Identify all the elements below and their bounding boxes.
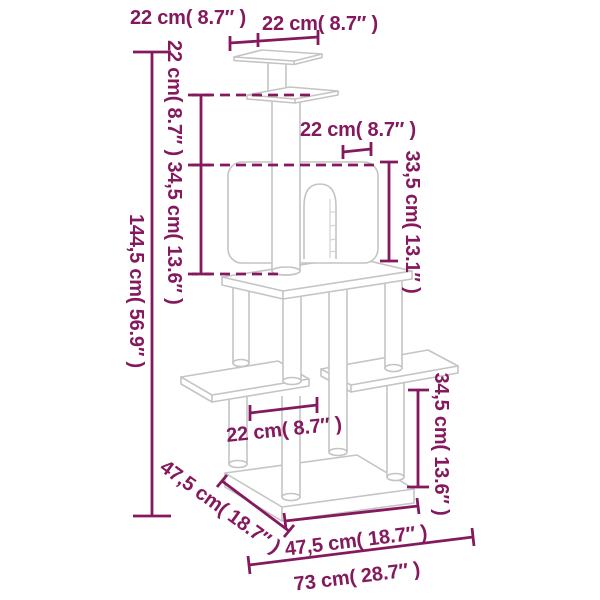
cat-condo: [228, 162, 378, 263]
label-condo-height: 33,5 cm( 13.1″ ): [401, 150, 423, 293]
post-base-cap: [385, 365, 402, 372]
post-base-cap: [329, 449, 347, 456]
dimension-line-door-width: [343, 142, 371, 159]
label-condo-door-width: 22 cm( 8.7″ ): [300, 119, 416, 141]
label-top-platform-width: 22 cm( 8.7″ ): [262, 13, 378, 35]
post-base-cap: [229, 461, 247, 468]
scratching-post: [282, 396, 300, 500]
dimension-diagram: 22 cm( 8.7″ ) 22 cm( 8.7″ ) 22 cm( 8.7″ …: [0, 0, 600, 600]
condo-door-arch: [304, 184, 336, 259]
dimension-line-left-sections: [192, 95, 211, 274]
scratching-post: [385, 278, 402, 372]
label-lower-right-section-height: 34,5 cm( 13.6″ ): [430, 372, 452, 515]
label-base-total-width: 73 cm( 28.7″ ): [293, 558, 422, 595]
post-base-cap: [283, 378, 301, 385]
dimension-line-lower-right-height: [407, 390, 429, 487]
diagram-canvas: 22 cm( 8.7″ ) 22 cm( 8.7″ ) 22 cm( 8.7″ …: [0, 0, 600, 600]
label-base-front-width: 47,5 cm( 18.7″ ): [284, 521, 429, 560]
main-center-post: [272, 95, 300, 275]
scratching-post: [387, 380, 404, 481]
base-platform: [225, 455, 414, 521]
label-middle-section-height: 34,5 cm( 13.6″ ): [163, 161, 185, 304]
scratching-post: [283, 285, 301, 385]
post-base-cap: [387, 474, 404, 481]
scratching-post: [233, 283, 249, 367]
post-base-cap: [233, 360, 249, 367]
post-base-cap: [282, 494, 300, 501]
label-top-platform-depth: 22 cm( 8.7″ ): [130, 7, 246, 29]
dimension-line-condo-height: [380, 162, 398, 261]
label-total-height: 144,5 cm( 56.9″ ): [125, 214, 147, 368]
label-top-section-height: 22 cm( 8.7″ ): [163, 40, 185, 156]
